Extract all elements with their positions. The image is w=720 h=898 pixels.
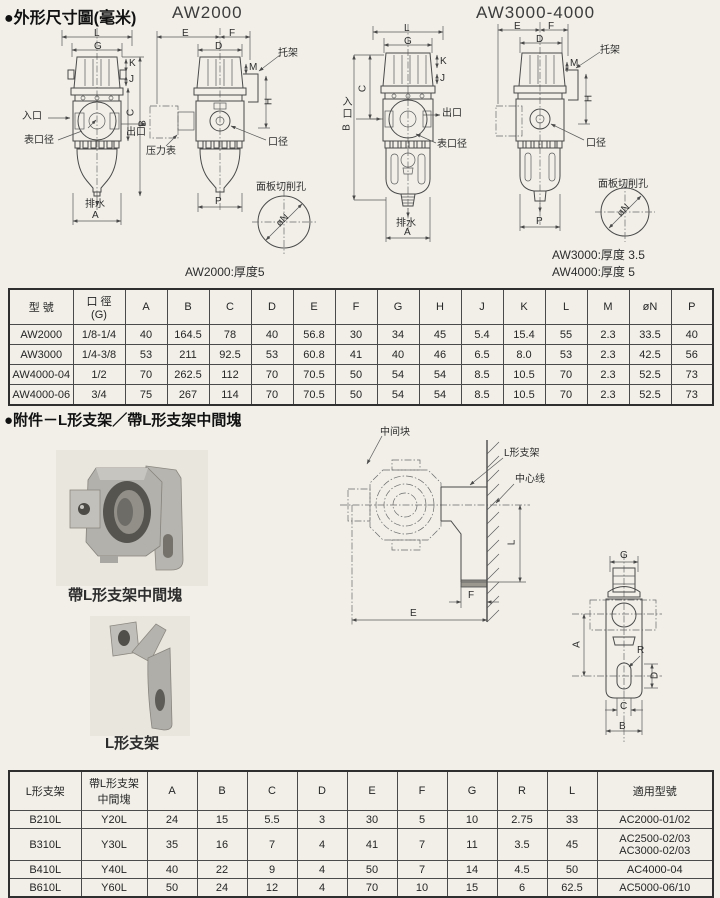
applicable-line2: AC3000-02/03 [598,845,713,857]
dim-label-p2: P [536,216,543,227]
cell: 267 [167,385,209,406]
cell: 73 [671,385,713,406]
header-bore-line1: 口 徑 [74,293,125,309]
header-dim: F [335,289,377,325]
cell: 2.3 [587,325,629,345]
cell-bore: 1/2 [73,365,125,385]
label-outlet2: 出口 [442,108,462,119]
cell: 5.4 [461,325,503,345]
dim-label-d2: D [536,34,543,45]
header-dim: A [147,771,197,811]
header-dim: L [547,771,597,811]
dim-label-d3: D [650,669,661,683]
dim-label-l3: L [507,536,518,550]
cell: 78 [209,325,251,345]
cell: 60.8 [293,345,335,365]
table-row: B410L Y40L 40 22 9 4 50 7 14 4.5 50 AC40… [9,861,713,879]
cell: 54 [419,385,461,406]
label-gauge-port: 表口径 [24,135,54,146]
dim-label-c2: C [358,82,369,96]
cell: 3.5 [497,829,547,861]
photo-l-bracket [90,616,190,736]
cell-bore: 1/4-3/8 [73,345,125,365]
dim-label-m: M [249,62,257,73]
cell: 53 [545,345,587,365]
cell: 92.5 [209,345,251,365]
cell: 42.5 [629,345,671,365]
cell: 2.3 [587,345,629,365]
cell: 5 [397,811,447,829]
dim-label-e2: E [514,21,521,32]
header-dim: P [671,289,713,325]
cell: 75 [125,385,167,406]
cell: 9 [247,861,297,879]
cell: 8.5 [461,365,503,385]
dim-label-g3: G [620,550,628,561]
cell: 70 [251,385,293,406]
cell: 10 [447,811,497,829]
catalog-page: { "page": { "title_dimensions": "●外形尺寸圖(… [0,0,720,897]
dim-label-g2: G [404,36,412,47]
cell: 53 [251,345,293,365]
note-aw3000-thickness: AW3000:厚度 3.5 [552,249,645,262]
label-bracket2: 托架 [600,45,620,56]
header-model: 型 號 [9,289,73,325]
cell: 70 [125,365,167,385]
table-row: AW4000-04 1/2 70 262.5 112 70 70.5 50 54… [9,365,713,385]
cell: 8.5 [461,385,503,406]
dim-label-j: J [129,74,134,85]
header-dim: J [461,289,503,325]
header-bore-line2: (G) [74,309,125,321]
header-block: 帶L形支架 中間塊 [81,771,147,811]
cell: 262.5 [167,365,209,385]
cell: 45 [419,325,461,345]
cell: 15 [447,879,497,898]
dim-label-b2: B [342,121,353,135]
header-dim: C [209,289,251,325]
cell: 33.5 [629,325,671,345]
cell: 56 [671,345,713,365]
cell: 7 [397,829,447,861]
header-applicable: 適用型號 [597,771,713,811]
header-dim: K [503,289,545,325]
dim-label-e: E [182,28,189,39]
header-dim: E [347,771,397,811]
dim-label-f: F [229,28,235,39]
cell-bracket: B210L [9,811,81,829]
cell: 14 [447,861,497,879]
dim-label-r: R [637,645,644,656]
cell-applicable: AC2000-01/02 [597,811,713,829]
cell: 3 [297,811,347,829]
cell-block: Y60L [81,879,147,898]
cell: 70 [347,879,397,898]
dim-label-l: L [94,28,100,39]
cell: 52.5 [629,385,671,406]
cell: 114 [209,385,251,406]
header-dim: B [167,289,209,325]
cell: 30 [347,811,397,829]
cell: 54 [377,385,419,406]
header-block-line2: 中間塊 [82,791,147,807]
cell: 50 [547,861,597,879]
header-bracket: L形支架 [9,771,81,811]
cell: 50 [347,861,397,879]
aw3000-front-view [354,24,443,242]
header-dim: G [377,289,419,325]
cell: 7 [247,829,297,861]
cell-block: Y40L [81,861,147,879]
label-port2: 口径 [586,138,606,149]
cell: 2.3 [587,385,629,406]
header-dim: R [497,771,547,811]
note-aw4000-thickness: AW4000:厚度 5 [552,266,635,279]
photo-block-label: 帶L形支架中間塊 [68,588,182,605]
header-dim: E [293,289,335,325]
cell: 2.75 [497,811,547,829]
dim-label-a3: A [572,638,583,652]
cell: 70 [251,365,293,385]
cell: 50 [147,879,197,898]
bracket-front-drawing [572,553,662,742]
cell: 12 [247,879,297,898]
cell-bore: 1/8-1/4 [73,325,125,345]
dim-label-f3: F [468,590,474,601]
table-row: AW2000 1/8-1/4 40 164.5 78 40 56.8 30 34… [9,325,713,345]
header-dim: L [545,289,587,325]
cell: 35 [147,829,197,861]
header-dim: F [397,771,447,811]
heading-aw2000: AW2000 [172,4,243,23]
cell-bracket: B410L [9,861,81,879]
cell-bracket: B610L [9,879,81,898]
cell: 164.5 [167,325,209,345]
cell: 56.8 [293,325,335,345]
cell: 54 [419,365,461,385]
table-row: AW4000-06 3/4 75 267 114 70 70.5 50 54 5… [9,385,713,406]
dim-label-h: H [264,95,275,109]
cell: 40 [251,325,293,345]
technical-drawings [0,0,720,897]
cell: 10.5 [503,385,545,406]
aw3000-side-view [496,22,600,231]
cell-model: AW3000 [9,345,73,365]
dimension-spec-table: 型 號 口 徑 (G) A B C D E F G H J K L M øN P… [8,288,714,406]
header-dim: B [197,771,247,811]
dim-label-k2: K [440,56,447,67]
cell: 2.3 [587,365,629,385]
dim-label-a: A [92,210,99,221]
cell: 40 [125,325,167,345]
cell: 70 [545,385,587,406]
bracket-spec-table: L形支架 帶L形支架 中間塊 A B C D E F G R L 適用型號 B2… [8,770,714,898]
cell: 24 [147,811,197,829]
cell: 41 [335,345,377,365]
cell: 30 [335,325,377,345]
section-title-accessories: ●附件－L形支架／帶L形支架中間塊 [4,413,241,430]
header-dim: G [447,771,497,811]
cell: 10.5 [503,365,545,385]
cell-model: AW4000-06 [9,385,73,406]
cell: 40 [147,861,197,879]
header-dim: A [125,289,167,325]
cell: 16 [197,829,247,861]
header-dim: øN [629,289,671,325]
dim-label-m2: M [570,58,578,69]
cell-applicable: AC5000-06/10 [597,879,713,898]
cell: 33 [547,811,597,829]
table-row: B310L Y30L 35 16 7 4 41 7 11 3.5 45 AC25… [9,829,713,861]
table-row: B610L Y60L 50 24 12 4 70 10 15 6 62.5 AC… [9,879,713,898]
dim-label-e3: E [410,608,417,619]
cell-bracket: B310L [9,829,81,861]
cell: 4 [297,861,347,879]
label-middle-block: 中间块 [380,427,410,438]
applicable-line1: AC2500-02/03 [598,833,713,845]
cell: 70.5 [293,385,335,406]
header-dim: D [251,289,293,325]
label-drain: 排水 [85,199,105,210]
label-panel-hole2: 面板切削孔 [598,179,648,190]
dim-label-d: D [215,41,222,52]
cell: 22 [197,861,247,879]
dim-label-p: P [215,196,222,207]
cell: 50 [335,365,377,385]
label-inlet: 入口 [22,111,42,122]
label-l-bracket: L形支架 [504,448,540,459]
cell: 70 [545,365,587,385]
cell: 8.0 [503,345,545,365]
cell: 4 [297,879,347,898]
cell-applicable: AC2500-02/03 AC3000-02/03 [597,829,713,861]
label-inlet2: 入口 [340,96,351,120]
header-bore: 口 徑 (G) [73,289,125,325]
dim-label-b3: B [619,721,626,732]
cell: 73 [671,365,713,385]
cell: 54 [377,365,419,385]
label-outlet: 出口 [126,127,146,138]
cell: 15 [197,811,247,829]
header-dim: M [587,289,629,325]
cell: 55 [545,325,587,345]
dim-label-c: C [126,106,137,120]
cell: 52.5 [629,365,671,385]
cell: 10 [397,879,447,898]
cell: 50 [335,385,377,406]
label-panel-hole: 面板切削孔 [256,182,306,193]
table-row: AW3000 1/4-3/8 53 211 92.5 53 60.8 41 40… [9,345,713,365]
dim-label-j2: J [440,73,445,84]
label-bracket: 托架 [278,48,298,59]
cell-model: AW4000-04 [9,365,73,385]
cell: 112 [209,365,251,385]
header-dim: D [297,771,347,811]
cell: 7 [397,861,447,879]
cell: 4.5 [497,861,547,879]
dim-label-g: G [94,41,102,52]
cell: 6 [497,879,547,898]
cell: 34 [377,325,419,345]
cell: 40 [377,345,419,365]
cell: 11 [447,829,497,861]
photo-block-with-bracket [56,450,208,586]
label-gauge-port2: 表口径 [437,139,467,150]
dim-label-k: K [129,58,136,69]
header-block-line1: 帶L形支架 [82,775,147,791]
cell-block: Y20L [81,811,147,829]
note-aw2000-thickness: AW2000:厚度5 [185,266,265,279]
table-row: B210L Y20L 24 15 5.5 3 30 5 10 2.75 33 A… [9,811,713,829]
dim-label-a2: A [404,227,411,238]
cell: 53 [125,345,167,365]
bracket-wall-drawing [340,436,530,626]
cell: 41 [347,829,397,861]
cell: 6.5 [461,345,503,365]
cell-model: AW2000 [9,325,73,345]
dim-label-f2: F [548,21,554,32]
cell: 62.5 [547,879,597,898]
cell-bore: 3/4 [73,385,125,406]
dim-label-l2: L [404,23,410,34]
cell-block: Y30L [81,829,147,861]
dim-label-h2: H [584,92,595,106]
cell: 4 [297,829,347,861]
cell: 211 [167,345,209,365]
photo-bracket-label: L形支架 [105,736,159,753]
cell: 24 [197,879,247,898]
table-header-row: 型 號 口 徑 (G) A B C D E F G H J K L M øN P [9,289,713,325]
dim-label-c3: C [620,701,627,712]
cell: 15.4 [503,325,545,345]
heading-aw3000-4000: AW3000-4000 [476,4,595,23]
header-dim: C [247,771,297,811]
table-header-row: L形支架 帶L形支架 中間塊 A B C D E F G R L 適用型號 [9,771,713,811]
cell: 40 [671,325,713,345]
cell: 46 [419,345,461,365]
header-dim: H [419,289,461,325]
cell: 70.5 [293,365,335,385]
label-port: 口径 [268,137,288,148]
cell: 5.5 [247,811,297,829]
label-center-line: 中心线 [515,474,545,485]
cell: 45 [547,829,597,861]
section-title-dimensions: ●外形尺寸圖(毫米) [4,10,136,28]
cell-applicable: AC4000-04 [597,861,713,879]
label-pressure-gauge: 压力表 [146,146,176,157]
